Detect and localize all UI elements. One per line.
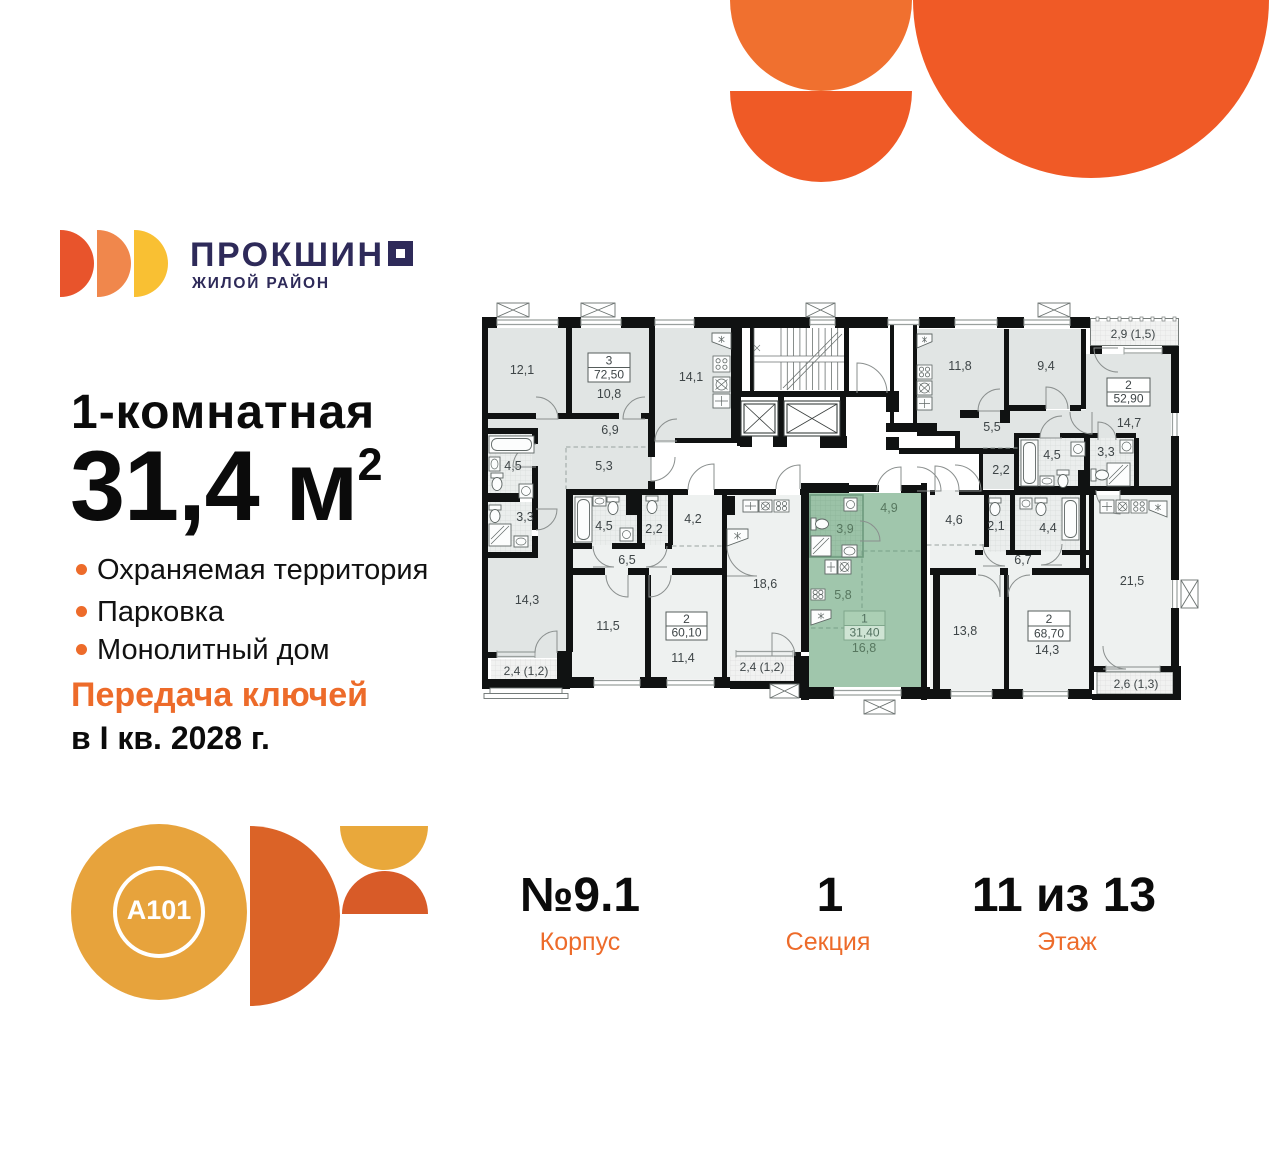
svg-text:3,3: 3,3 [516, 510, 533, 524]
svg-text:11,8: 11,8 [948, 359, 971, 373]
svg-text:4,5: 4,5 [504, 459, 521, 473]
svg-text:16,8: 16,8 [852, 641, 876, 655]
svg-text:2: 2 [683, 612, 690, 626]
svg-text:2,2: 2,2 [645, 522, 662, 536]
svg-text:6,9: 6,9 [601, 423, 618, 437]
svg-text:2: 2 [1125, 378, 1132, 392]
svg-text:52,90: 52,90 [1113, 392, 1143, 406]
svg-text:4,4: 4,4 [1039, 521, 1056, 535]
svg-text:5,8: 5,8 [834, 588, 851, 602]
svg-text:5,3: 5,3 [595, 459, 612, 473]
svg-text:3: 3 [606, 354, 613, 368]
svg-text:10,8: 10,8 [597, 387, 621, 401]
svg-text:3,3: 3,3 [1097, 445, 1114, 459]
svg-text:6,7: 6,7 [1014, 553, 1031, 567]
svg-text:14,3: 14,3 [1035, 643, 1059, 657]
svg-text:2,2: 2,2 [992, 463, 1009, 477]
svg-text:4,6: 4,6 [945, 513, 962, 527]
svg-text:60,10: 60,10 [671, 626, 701, 640]
svg-text:14,3: 14,3 [515, 593, 539, 607]
svg-text:4,5: 4,5 [1043, 448, 1060, 462]
svg-text:11,4: 11,4 [671, 651, 694, 665]
svg-text:31,40: 31,40 [849, 626, 879, 640]
svg-text:68,70: 68,70 [1034, 627, 1064, 641]
svg-text:1: 1 [861, 612, 868, 626]
svg-text:2,1: 2,1 [987, 519, 1004, 533]
svg-text:12,1: 12,1 [510, 363, 534, 377]
svg-text:2,9 (1,5): 2,9 (1,5) [1111, 327, 1156, 341]
svg-text:2,4 (1,2): 2,4 (1,2) [504, 664, 549, 678]
svg-text:5,5: 5,5 [983, 420, 1000, 434]
svg-text:4,5: 4,5 [595, 519, 612, 533]
svg-text:18,6: 18,6 [753, 577, 777, 591]
svg-text:2,6 (1,3): 2,6 (1,3) [1114, 677, 1159, 691]
svg-text:4,9: 4,9 [880, 501, 897, 515]
svg-text:3,9: 3,9 [836, 522, 853, 536]
svg-text:2,4 (1,2): 2,4 (1,2) [740, 660, 785, 674]
svg-text:11,5: 11,5 [596, 619, 619, 633]
svg-text:4,2: 4,2 [684, 512, 701, 526]
svg-text:6,5: 6,5 [618, 553, 635, 567]
svg-text:2: 2 [1046, 612, 1053, 626]
svg-text:14,7: 14,7 [1117, 416, 1141, 430]
svg-text:14,1: 14,1 [679, 370, 703, 384]
svg-text:9,4: 9,4 [1037, 359, 1054, 373]
svg-text:72,50: 72,50 [594, 368, 624, 382]
svg-text:21,5: 21,5 [1120, 574, 1144, 588]
svg-text:13,8: 13,8 [953, 624, 977, 638]
